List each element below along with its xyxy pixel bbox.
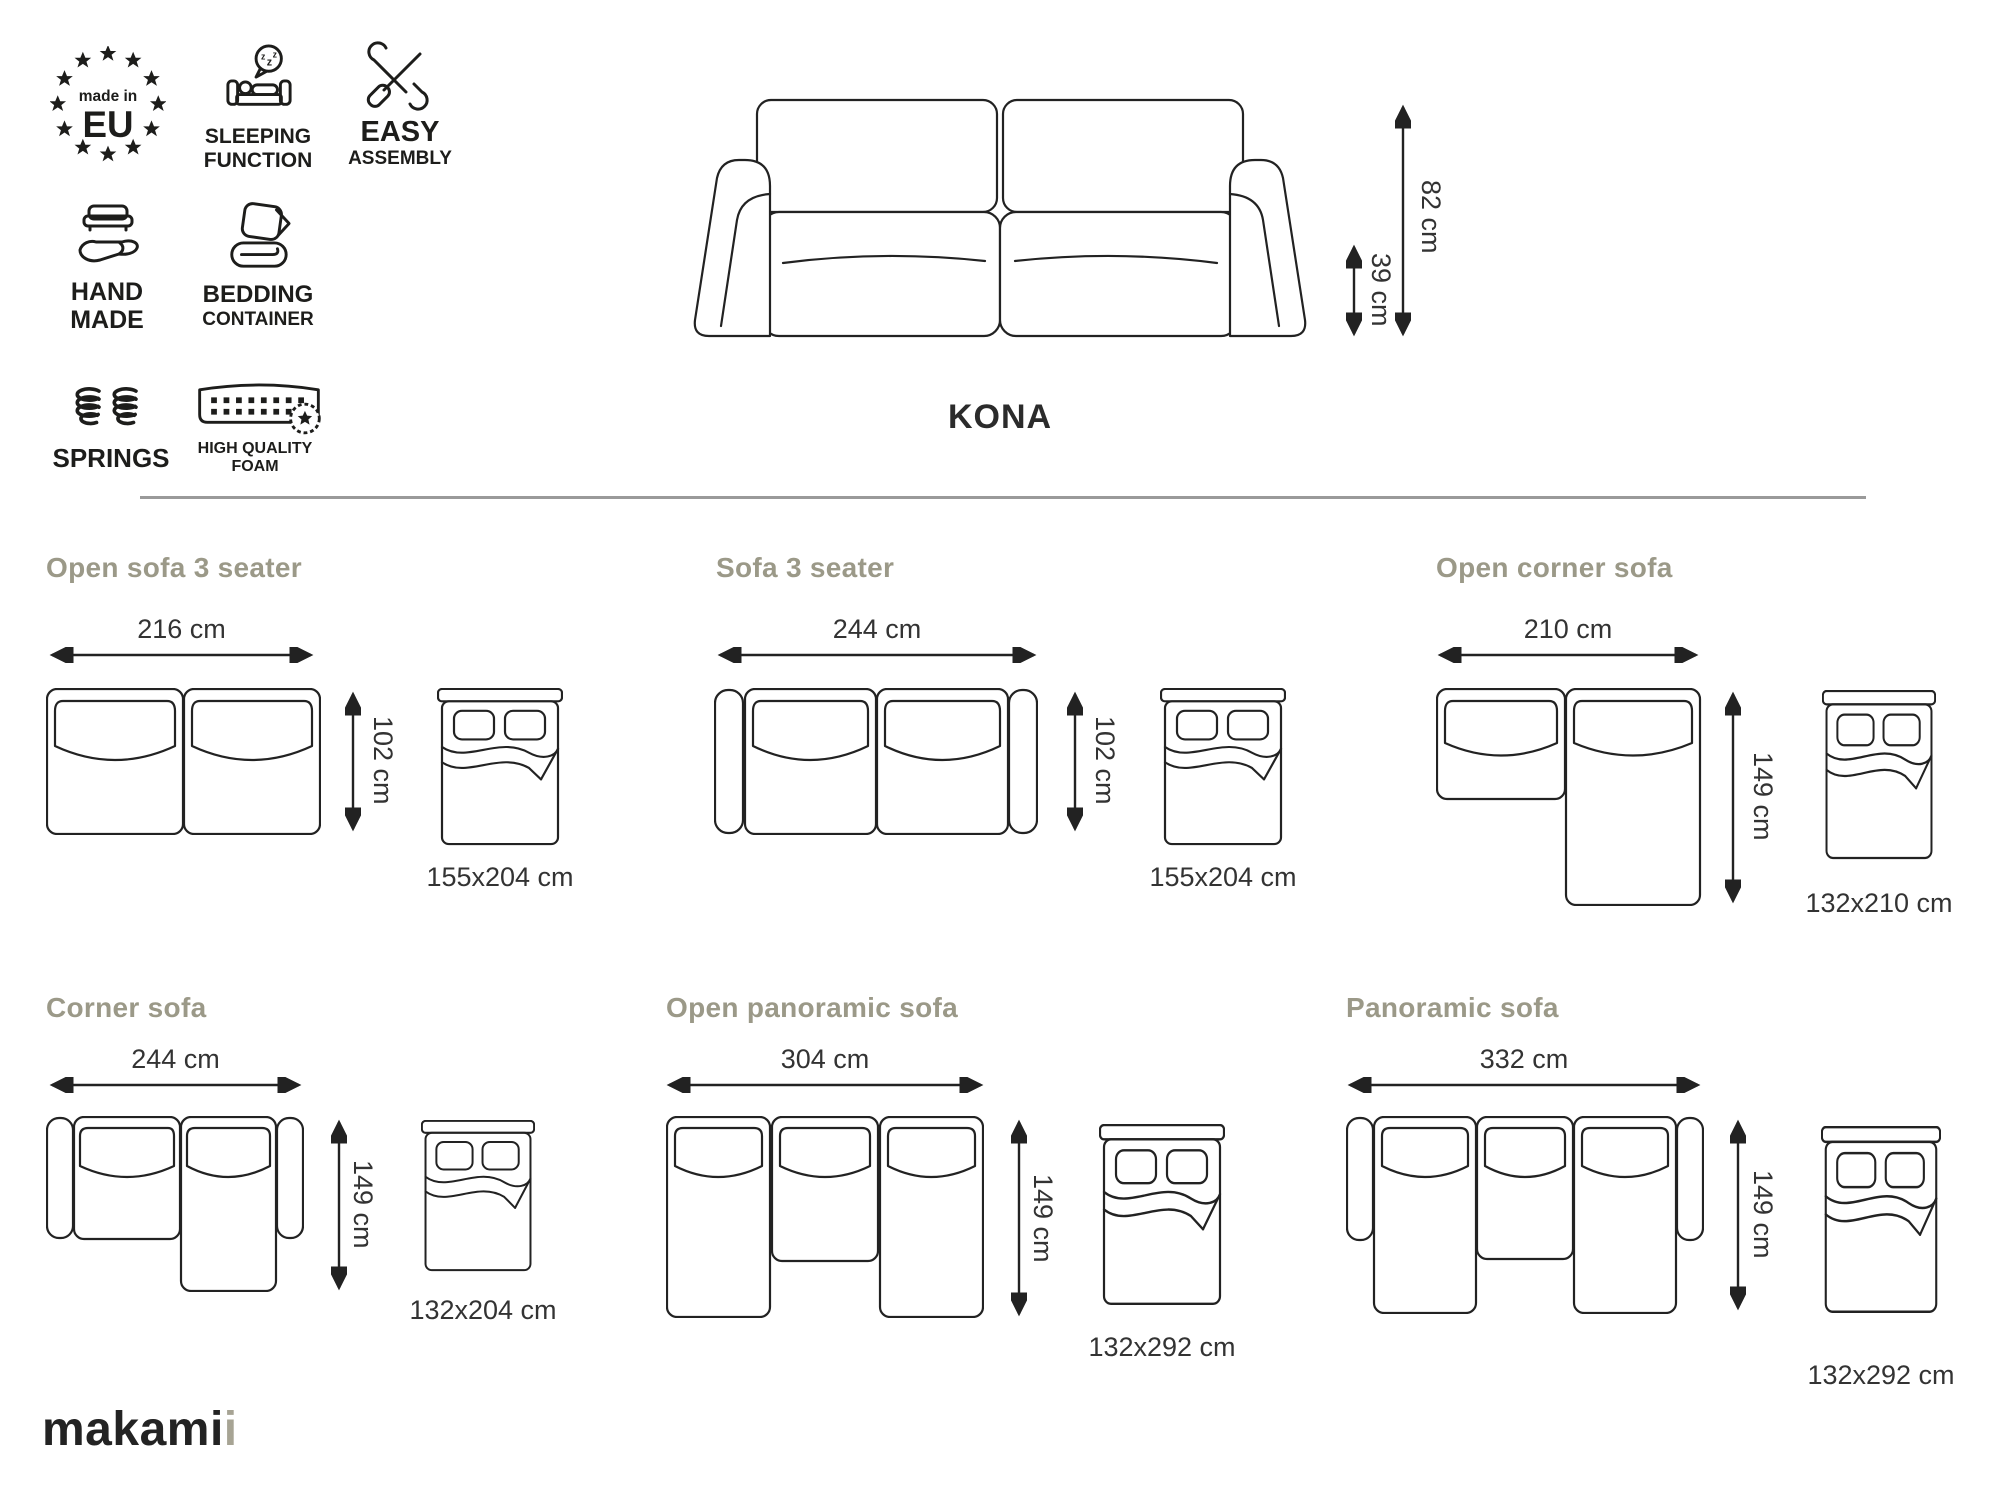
svg-text:z: z [261,52,266,62]
hand-made-icon [72,202,144,276]
hand-made-label: HAND MADE [57,278,157,334]
brand-logo-accent: i [224,1403,238,1456]
variant-width-label: 244 cm [716,614,1038,645]
width-arrow [1346,1077,1702,1093]
sofa-top-view [46,688,321,835]
width-arrow [48,1077,303,1093]
high-quality-foam-icon [192,376,326,438]
easy-assembly-label: EASY ASSEMBLY [340,116,460,170]
svg-text:z: z [267,56,272,68]
width-arrow [665,1077,985,1093]
variant-title: Sofa 3 seater [716,552,894,584]
variant-depth-label: 149 cm [1748,1170,1778,1259]
depth-arrow [345,690,361,833]
width-arrow [716,647,1038,663]
product-sheet: made in EU z z z SLEEPING FUNCTION EASY … [0,0,2000,1500]
bed-top-view [421,1120,535,1272]
svg-text:z: z [273,50,278,60]
total-height-label: 82 cm [1416,180,1446,254]
sleeping-function-label: SLEEPING FUNCTION [193,125,323,172]
variant-width-label: 210 cm [1436,614,1700,645]
easy-assembly-icon [362,40,434,114]
made-in-eu-icon: made in EU [50,46,166,162]
variant-title: Open corner sofa [1436,552,1673,584]
bed-size-label: 132x204 cm [398,1295,568,1326]
total-height-arrow [1395,103,1411,338]
bed-size-label: 132x292 cm [1796,1360,1966,1391]
sofa-top-view [666,1116,984,1318]
springs-icon [70,378,144,438]
bed-top-view [1822,690,1936,860]
variant-width-label: 332 cm [1346,1044,1702,1075]
variant-width-label: 244 cm [48,1044,303,1075]
sleeping-function-icon: z z z [224,44,294,116]
high-quality-foam-label: HIGH QUALITY FOAM [170,440,340,476]
variant-depth-label: 149 cm [348,1160,378,1249]
width-arrow [48,647,315,663]
width-arrow [1436,647,1700,663]
variant-title: Open panoramic sofa [666,992,958,1024]
bed-top-view [437,688,563,846]
bed-size-label: 132x292 cm [1077,1332,1247,1363]
seat-height-arrow [1346,243,1362,338]
bed-top-view [1821,1126,1941,1314]
depth-arrow [331,1118,347,1292]
bedding-container-icon [224,202,292,278]
sofa-top-view [46,1116,304,1292]
bed-size-label: 155x204 cm [1138,862,1308,893]
sofa-top-view [1436,688,1702,906]
variant-depth-label: 102 cm [1090,716,1120,805]
eu-label: EU [82,104,133,145]
depth-arrow [1730,1118,1746,1312]
bed-top-view [1160,688,1286,846]
variant-depth-label: 149 cm [1028,1174,1058,1263]
bed-top-view [1099,1124,1225,1306]
variant-depth-label: 149 cm [1748,752,1778,841]
bed-size-label: 155x204 cm [415,862,585,893]
bedding-container-label: BEDDING CONTAINER [182,282,334,330]
variant-width-label: 216 cm [48,614,315,645]
variant-title: Open sofa 3 seater [46,552,302,584]
variant-title: Panoramic sofa [1346,992,1559,1024]
depth-arrow [1067,690,1083,833]
sofa-top-view [714,688,1038,835]
brand-logo: makamii [42,1402,238,1457]
seat-height-label: 39 cm [1366,253,1396,327]
section-divider [140,496,1866,499]
sofa-top-view [1346,1116,1704,1314]
springs-label: SPRINGS [51,444,171,473]
product-name: KONA [900,398,1100,437]
variant-width-label: 304 cm [665,1044,985,1075]
variant-depth-label: 102 cm [368,716,398,805]
brand-logo-main: makami [42,1403,224,1456]
depth-arrow [1011,1118,1027,1318]
variant-title: Corner sofa [46,992,206,1024]
bed-size-label: 132x210 cm [1794,888,1964,919]
made-in-label: made in [79,88,137,105]
depth-arrow [1725,690,1741,905]
sofa-front-view [693,98,1307,340]
